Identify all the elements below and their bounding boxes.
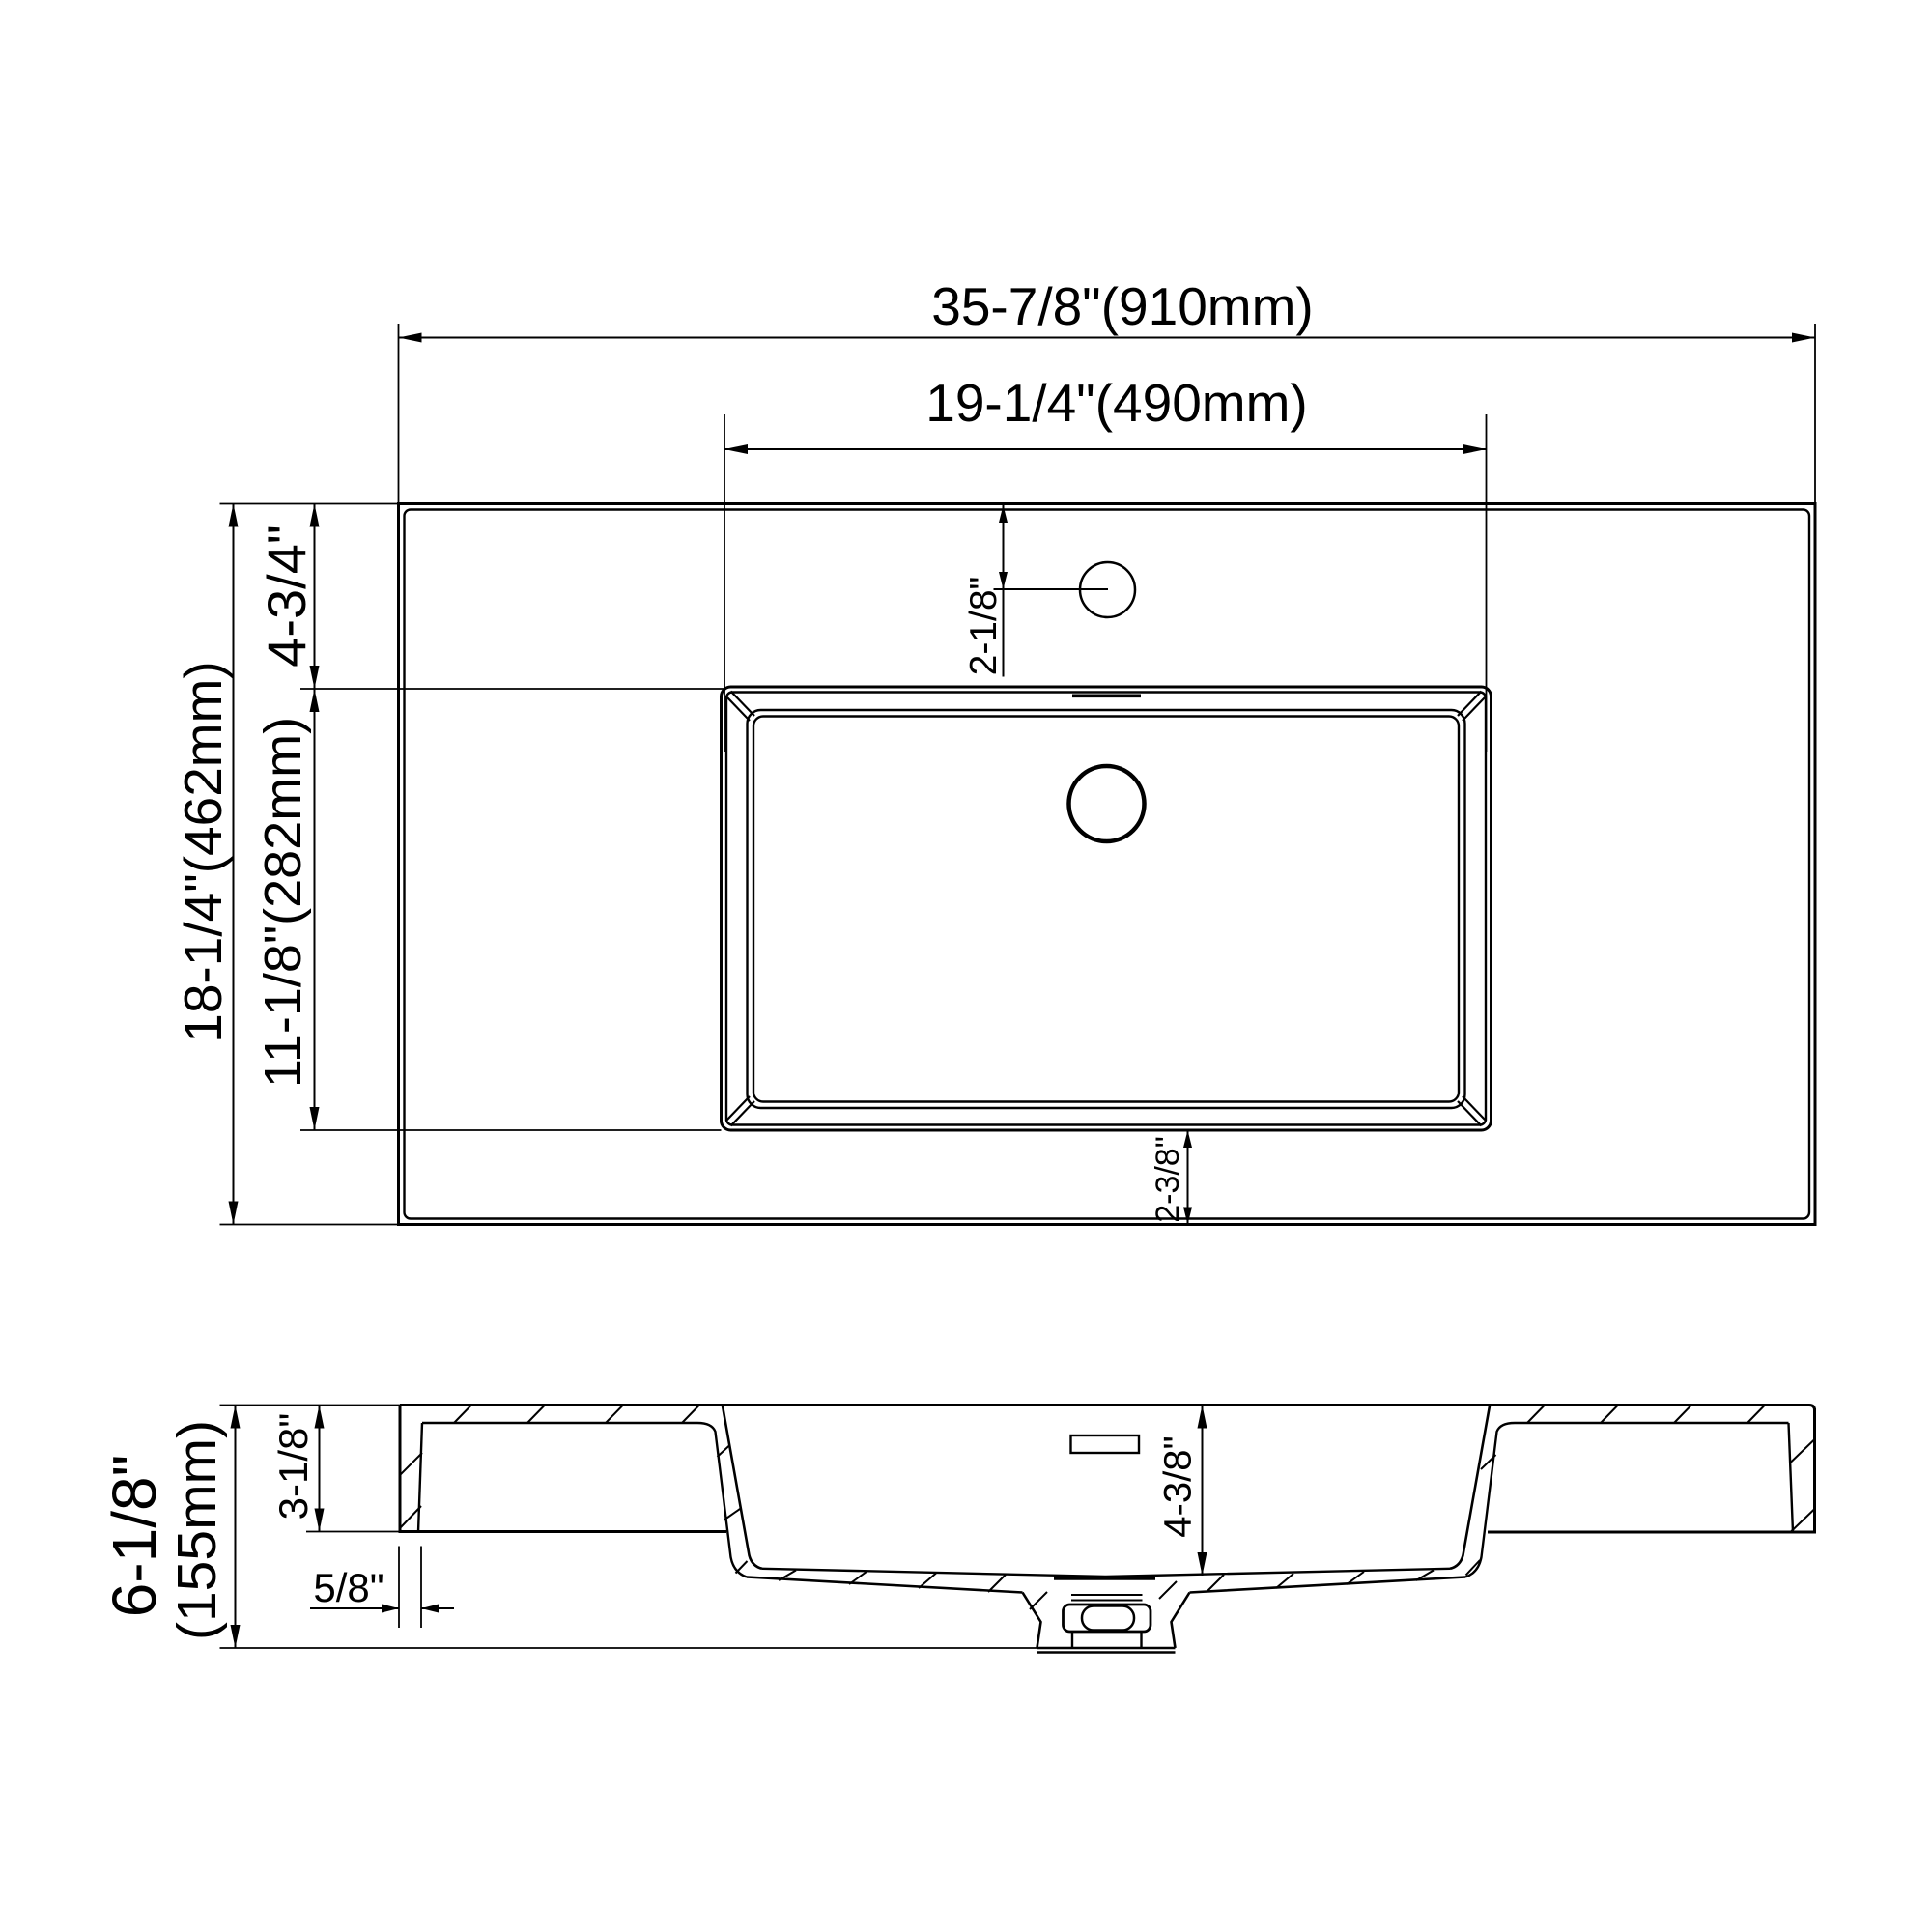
svg-text:(155mm): (155mm)	[166, 1420, 228, 1640]
svg-text:6-1/8": 6-1/8"	[99, 1455, 169, 1618]
svg-text:4-3/8": 4-3/8"	[1157, 1435, 1200, 1537]
svg-text:2-1/8": 2-1/8"	[963, 577, 1005, 676]
svg-text:19-1/4"(490mm): 19-1/4"(490mm)	[925, 373, 1308, 433]
svg-text:18-1/4"(462mm): 18-1/4"(462mm)	[173, 661, 233, 1043]
svg-text:5/8": 5/8"	[313, 1565, 384, 1610]
svg-text:11-1/8"(282mm): 11-1/8"(282mm)	[254, 717, 312, 1088]
svg-text:3-1/8": 3-1/8"	[270, 1413, 316, 1520]
svg-text:35-7/8"(910mm): 35-7/8"(910mm)	[931, 276, 1314, 336]
svg-text:4-3/4": 4-3/4"	[256, 525, 317, 668]
svg-text:2-3/8": 2-3/8"	[1150, 1136, 1186, 1223]
